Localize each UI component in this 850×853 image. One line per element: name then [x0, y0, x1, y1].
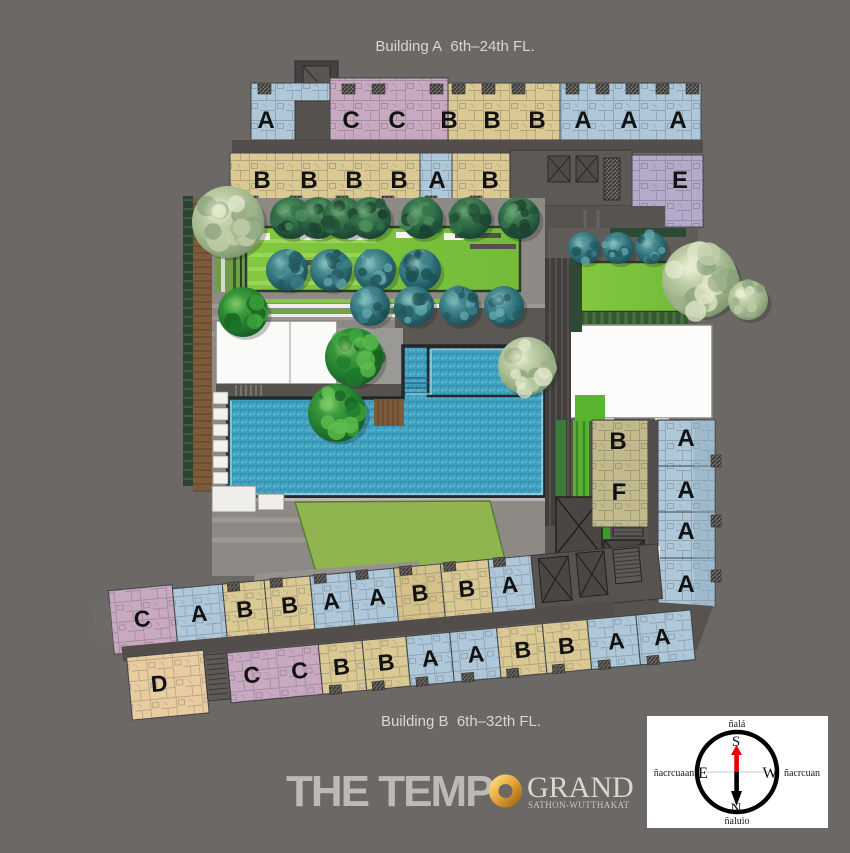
- svg-text:A: A: [677, 425, 694, 452]
- svg-text:C: C: [133, 605, 152, 632]
- svg-text:A: A: [574, 107, 591, 134]
- svg-text:A: A: [677, 518, 694, 545]
- svg-text:SATHON-WUTTHAKAT: SATHON-WUTTHAKAT: [528, 800, 629, 810]
- svg-text:B: B: [390, 167, 407, 194]
- svg-text:C: C: [242, 661, 261, 688]
- svg-text:E: E: [698, 765, 708, 782]
- svg-text:B: B: [280, 591, 299, 618]
- svg-text:A: A: [607, 627, 626, 654]
- svg-text:F: F: [612, 479, 627, 506]
- svg-text:C: C: [290, 657, 309, 684]
- svg-text:C: C: [388, 107, 405, 134]
- svg-text:B: B: [410, 579, 429, 606]
- svg-text:B: B: [345, 167, 362, 194]
- svg-text:B: B: [332, 653, 351, 680]
- svg-text:N: N: [731, 801, 742, 817]
- svg-text:B: B: [440, 107, 457, 134]
- svg-text:A: A: [322, 587, 341, 614]
- svg-text:ñalá: ñalá: [729, 719, 746, 730]
- svg-text:A: A: [428, 167, 445, 194]
- svg-text:A: A: [620, 107, 637, 134]
- svg-text:B: B: [481, 167, 498, 194]
- svg-text:ñacrcuaan: ñacrcuaan: [654, 768, 695, 779]
- svg-text:B: B: [557, 632, 576, 659]
- svg-text:S: S: [732, 734, 740, 750]
- svg-text:B: B: [253, 167, 270, 194]
- svg-text:A: A: [677, 571, 694, 598]
- svg-text:D: D: [150, 670, 169, 697]
- svg-text:Building A 6th–24th FL.: Building A 6th–24th FL.: [375, 38, 534, 55]
- svg-text:A: A: [466, 640, 485, 667]
- svg-text:A: A: [421, 645, 440, 672]
- svg-text:A: A: [669, 107, 686, 134]
- svg-text:B: B: [609, 428, 626, 455]
- svg-text:ñaluio: ñaluio: [725, 816, 750, 827]
- svg-text:B: B: [377, 649, 396, 676]
- svg-text:B: B: [483, 107, 500, 134]
- svg-text:B: B: [513, 636, 532, 663]
- svg-text:A: A: [257, 107, 274, 134]
- svg-text:A: A: [653, 623, 672, 650]
- svg-text:ñacrcuan: ñacrcuan: [784, 768, 820, 779]
- svg-text:A: A: [368, 583, 387, 610]
- svg-text:B: B: [457, 575, 476, 602]
- svg-text:B: B: [235, 595, 254, 622]
- svg-text:C: C: [342, 107, 359, 134]
- svg-text:A: A: [500, 571, 519, 598]
- svg-text:B: B: [300, 167, 317, 194]
- svg-text:E: E: [672, 167, 688, 194]
- svg-text:A: A: [189, 600, 208, 627]
- svg-text:A: A: [677, 477, 694, 504]
- svg-text:Building B 6th–32th FL.: Building B 6th–32th FL.: [381, 713, 541, 730]
- svg-text:W: W: [762, 765, 778, 782]
- svg-text:B: B: [528, 107, 545, 134]
- svg-text:THE TEMP: THE TEMP: [286, 767, 493, 816]
